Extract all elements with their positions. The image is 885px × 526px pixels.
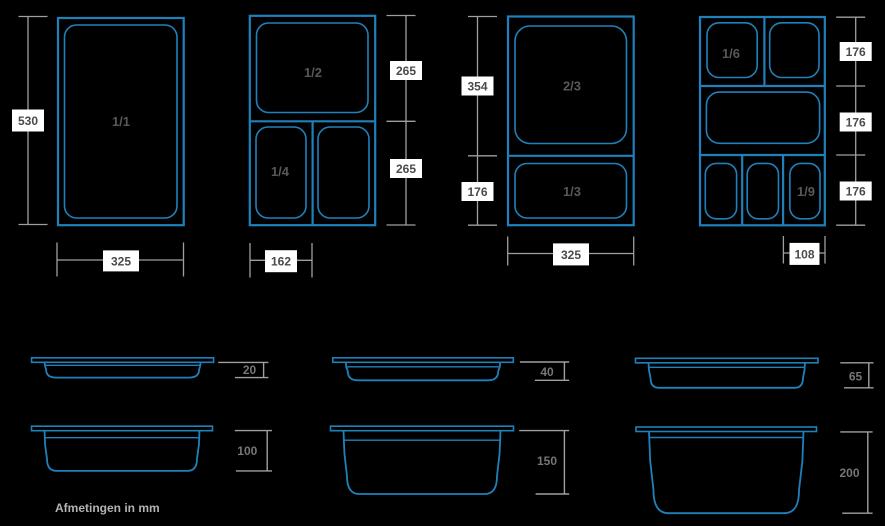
svg-text:1/4: 1/4 bbox=[271, 164, 290, 179]
svg-text:176: 176 bbox=[467, 185, 487, 199]
svg-text:Afmetingen in mm: Afmetingen in mm bbox=[55, 501, 160, 515]
svg-text:354: 354 bbox=[467, 80, 487, 94]
svg-text:1/9: 1/9 bbox=[797, 184, 815, 199]
svg-text:1/6: 1/6 bbox=[722, 46, 740, 61]
svg-text:20: 20 bbox=[243, 363, 257, 377]
svg-text:150: 150 bbox=[537, 454, 557, 468]
svg-text:1/1: 1/1 bbox=[112, 114, 130, 129]
svg-text:265: 265 bbox=[396, 64, 416, 78]
svg-text:100: 100 bbox=[237, 444, 257, 458]
svg-text:325: 325 bbox=[561, 248, 581, 262]
svg-text:65: 65 bbox=[849, 370, 863, 384]
svg-text:176: 176 bbox=[846, 116, 866, 130]
svg-text:2/3: 2/3 bbox=[563, 79, 581, 94]
svg-text:1/2: 1/2 bbox=[304, 65, 322, 80]
svg-text:176: 176 bbox=[846, 185, 866, 199]
svg-text:1/3: 1/3 bbox=[563, 184, 581, 199]
svg-text:530: 530 bbox=[18, 114, 38, 128]
svg-text:162: 162 bbox=[271, 255, 291, 269]
svg-text:108: 108 bbox=[794, 247, 814, 261]
svg-text:325: 325 bbox=[111, 254, 131, 268]
svg-text:200: 200 bbox=[839, 466, 859, 480]
svg-text:176: 176 bbox=[846, 45, 866, 59]
svg-text:265: 265 bbox=[396, 162, 416, 176]
svg-text:40: 40 bbox=[540, 365, 554, 379]
